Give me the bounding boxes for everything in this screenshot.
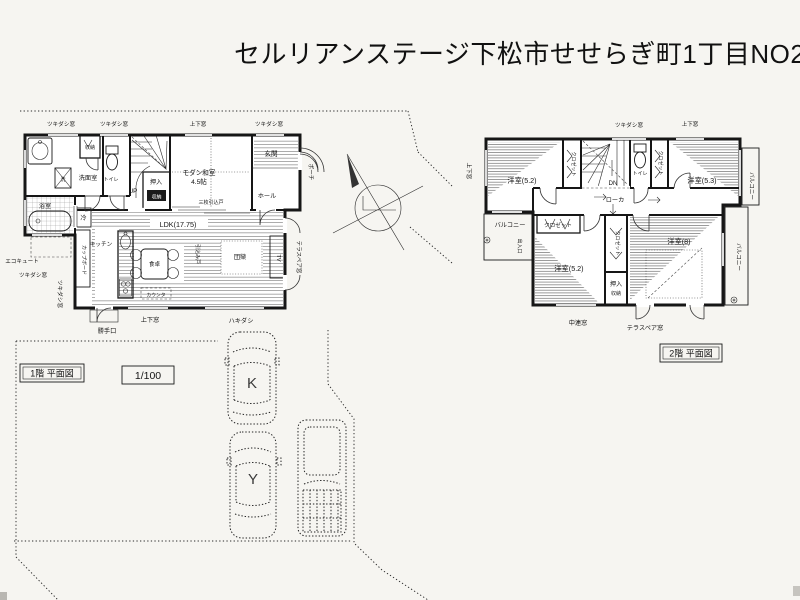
caption-floor2: 2階 平面図 bbox=[660, 344, 722, 362]
label-hikikomi-door: 引込み戸 bbox=[194, 244, 201, 264]
room-label-ldk: LDK(17.75) bbox=[160, 220, 197, 229]
label-oshiire-shelf: 収納 bbox=[151, 194, 161, 201]
label-sanmai-door: 三枚引込戸 bbox=[198, 199, 223, 206]
label-danran: 団欒 bbox=[234, 253, 246, 261]
label-closet: クロゼット bbox=[614, 230, 621, 255]
label-oshiire2: 押入 bbox=[610, 280, 622, 288]
label-tv: TV bbox=[275, 254, 281, 261]
label-wash: 洗 bbox=[60, 176, 65, 183]
label-deiriguchi: 出入口 bbox=[516, 238, 523, 253]
window-label: 中連窓 bbox=[569, 319, 588, 327]
window-label: ツキダシ窓 bbox=[255, 120, 283, 128]
label-shuno2: 収納 bbox=[611, 290, 621, 297]
window-label: 上下窓 bbox=[190, 120, 207, 128]
label-porch: ポーチ bbox=[307, 164, 315, 181]
label-ecocute: エコキュート bbox=[5, 258, 39, 265]
label-counter: カウンタ bbox=[146, 292, 165, 299]
window-label: ツキダシ窓 bbox=[56, 280, 64, 308]
label-washitsu-size: 4.5帖 bbox=[191, 177, 207, 186]
label-dn: DN bbox=[609, 180, 618, 187]
label-cupboard: カップボード bbox=[81, 245, 88, 275]
room-label-toilet2: トイレ bbox=[632, 171, 647, 177]
room-label-kitchen: キッチン bbox=[90, 241, 113, 248]
label-oshiire: 押入 bbox=[150, 178, 162, 186]
room-label-bath: 浴室 bbox=[39, 202, 51, 210]
caption-floor2-text: 2階 平面図 bbox=[669, 349, 713, 359]
window-label: ツキダシ窓 bbox=[47, 120, 75, 128]
car-k: K bbox=[225, 332, 279, 424]
car-y-letter: Y bbox=[248, 471, 258, 488]
label-katteguchi: 勝手口 bbox=[98, 327, 117, 335]
window-label: ツキダシ窓 bbox=[19, 271, 47, 279]
label-closet: クロゼット bbox=[544, 221, 572, 229]
label-closet: クロゼット bbox=[657, 150, 664, 175]
car-van bbox=[298, 420, 346, 536]
label-roka: ローカ bbox=[606, 197, 625, 204]
room-label-genkan: 玄関 bbox=[264, 149, 278, 158]
window-label: ツキダシ窓 bbox=[615, 121, 643, 129]
window-label: ハキダシ bbox=[229, 317, 254, 325]
label-up: UP bbox=[129, 188, 138, 195]
room-label-bed8: 洋室(8) bbox=[667, 237, 690, 246]
scan-specks bbox=[0, 586, 800, 600]
katteguchi-step bbox=[90, 310, 118, 322]
floor1-plan: ツキダシ窓 ツキダシ窓 上下窓 ツキダシ窓 洗面室 洗 浴室 収納 トイレ UP… bbox=[5, 0, 492, 335]
caption-floor1: 1階 平面図 bbox=[20, 364, 84, 382]
room-label-toilet: トイレ bbox=[103, 177, 118, 183]
window-label: 上下窓 bbox=[141, 316, 160, 324]
caption-scale-text: 1/100 bbox=[135, 370, 161, 382]
window-label: テラスペア窓 bbox=[627, 324, 664, 332]
window-label: テラスペア窓 bbox=[295, 240, 303, 273]
caption-scale: 1/100 bbox=[122, 366, 174, 384]
north-arrow-icon bbox=[333, 154, 423, 250]
caption-floor1-text: 1階 平面図 bbox=[30, 369, 74, 379]
window-label: 上下窓 bbox=[682, 120, 699, 128]
room-label-bed52-top: 洋室(5.2) bbox=[507, 176, 536, 185]
room-label-hall: ホール bbox=[258, 193, 277, 200]
label-dining: 食卓 bbox=[149, 260, 161, 268]
room-label-washitsu: モダン和室 bbox=[183, 168, 216, 177]
label-balcony-right-lower: バルコニー bbox=[735, 243, 742, 271]
ecocute-unit bbox=[31, 237, 71, 257]
window-label: 上下窓 bbox=[465, 163, 473, 180]
room-label-senmen: 洗面室 bbox=[79, 174, 98, 182]
room-label-bed53: 洋室(5.3) bbox=[687, 176, 716, 185]
label-closet: クロゼット bbox=[570, 151, 577, 176]
window-label: ツキダシ窓 bbox=[100, 120, 128, 128]
room-label-bed52-bottom: 洋室(5.2) bbox=[554, 264, 583, 273]
label-fridge: 冷 bbox=[80, 214, 86, 222]
car-k-letter: K bbox=[247, 375, 257, 392]
label-shuno: 収納 bbox=[85, 144, 95, 151]
car-y: Y bbox=[227, 432, 281, 538]
floor2-plan: ツキダシ窓 上下窓 洋室(5.2) クロゼット DN トイレ クロゼット 洋室(… bbox=[465, 120, 759, 332]
balcony-left bbox=[484, 214, 532, 260]
label-balcony-right-upper: バルコニー bbox=[748, 172, 755, 200]
floorplan-drawing: ツキダシ窓 ツキダシ窓 上下窓 ツキダシ窓 洗面室 洗 浴室 収納 トイレ UP… bbox=[0, 0, 800, 600]
label-balcony-left: バルコニー bbox=[495, 222, 526, 229]
